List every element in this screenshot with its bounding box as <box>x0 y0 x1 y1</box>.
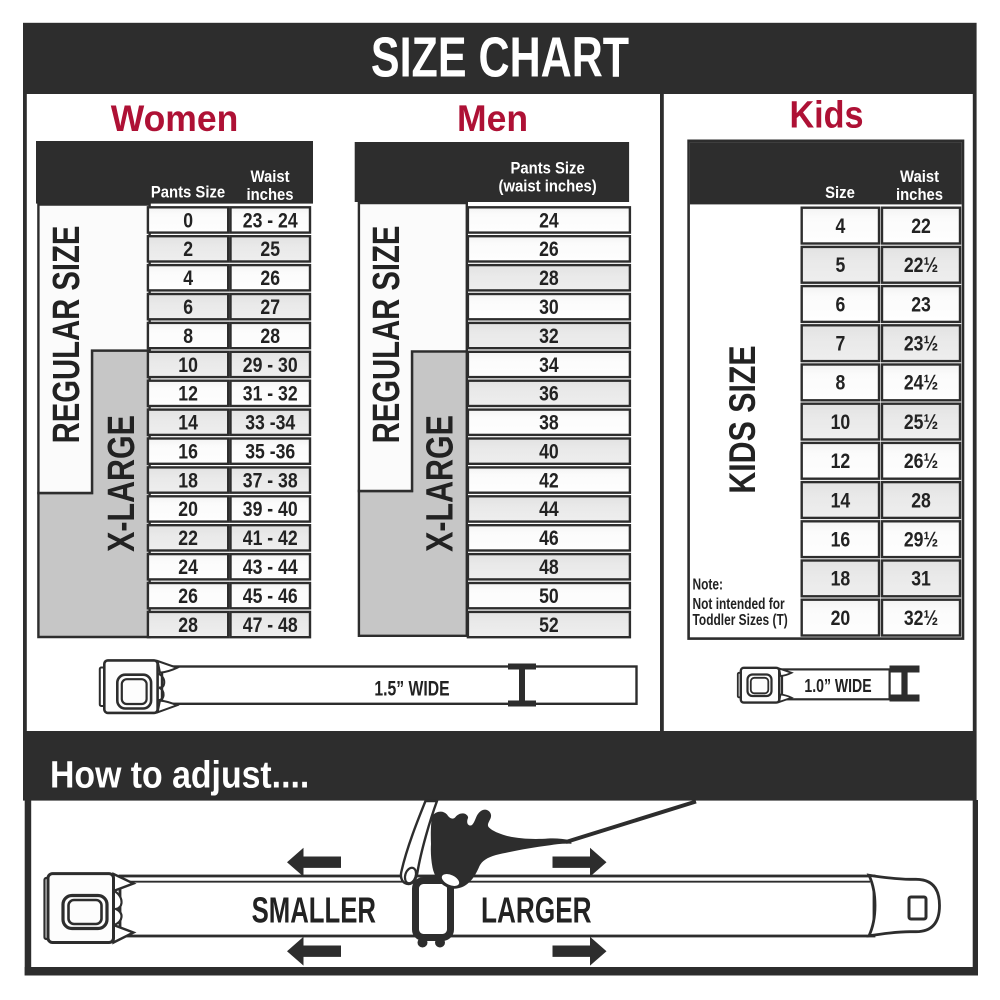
svg-text:30: 30 <box>539 295 559 319</box>
svg-text:26½: 26½ <box>904 450 938 474</box>
svg-text:28: 28 <box>260 324 280 348</box>
svg-text:7: 7 <box>835 332 845 356</box>
svg-text:22½: 22½ <box>904 254 938 278</box>
svg-text:37 - 38: 37 - 38 <box>243 469 298 493</box>
svg-text:16: 16 <box>831 528 851 552</box>
svg-text:31 - 32: 31 - 32 <box>243 382 298 406</box>
svg-text:40: 40 <box>539 440 559 464</box>
svg-text:LARGER: LARGER <box>481 890 592 930</box>
svg-text:10: 10 <box>178 353 198 377</box>
svg-text:14: 14 <box>178 411 198 435</box>
svg-text:X-LARGE: X-LARGE <box>419 415 461 552</box>
svg-text:33 -34: 33 -34 <box>245 411 295 435</box>
svg-text:1.0” WIDE: 1.0” WIDE <box>804 676 871 696</box>
svg-text:KIDS SIZE: KIDS SIZE <box>722 345 764 493</box>
svg-text:18: 18 <box>178 469 198 493</box>
svg-text:5: 5 <box>835 254 845 278</box>
svg-text:32½: 32½ <box>904 606 938 630</box>
svg-text:Men: Men <box>457 97 528 139</box>
svg-text:How to adjust....: How to adjust.... <box>50 753 309 796</box>
svg-text:31: 31 <box>911 567 931 591</box>
svg-text:38: 38 <box>539 411 559 435</box>
svg-text:22: 22 <box>911 214 931 238</box>
svg-text:6: 6 <box>183 295 193 319</box>
svg-text:29½: 29½ <box>904 528 938 552</box>
svg-text:45 - 46: 45 - 46 <box>243 584 298 608</box>
svg-text:29 - 30: 29 - 30 <box>243 353 298 377</box>
svg-text:10: 10 <box>831 410 851 434</box>
svg-text:22: 22 <box>178 527 198 551</box>
svg-text:26: 26 <box>539 238 559 262</box>
svg-text:12: 12 <box>831 450 851 474</box>
svg-text:24: 24 <box>178 556 198 580</box>
svg-text:25½: 25½ <box>904 410 938 434</box>
svg-text:Pants Size: Pants Size <box>510 160 584 178</box>
svg-text:32: 32 <box>539 324 559 348</box>
svg-text:24½: 24½ <box>904 371 938 395</box>
svg-text:inches: inches <box>246 186 293 204</box>
svg-text:inches: inches <box>896 186 943 204</box>
svg-text:Kids: Kids <box>789 93 863 136</box>
svg-text:8: 8 <box>183 324 193 348</box>
svg-text:Note:: Note: <box>693 575 723 593</box>
svg-text:25: 25 <box>260 238 280 262</box>
svg-text:8: 8 <box>835 371 845 395</box>
svg-text:Size: Size <box>825 184 855 202</box>
svg-text:52: 52 <box>539 613 559 637</box>
svg-text:14: 14 <box>831 489 851 513</box>
svg-text:39 - 40: 39 - 40 <box>243 498 298 522</box>
svg-text:46: 46 <box>539 527 559 551</box>
svg-text:SIZE CHART: SIZE CHART <box>371 25 629 89</box>
svg-text:28: 28 <box>911 489 931 513</box>
svg-text:Pants Size: Pants Size <box>151 184 225 202</box>
svg-text:28: 28 <box>178 613 198 637</box>
svg-text:24: 24 <box>539 209 559 233</box>
svg-text:SMALLER: SMALLER <box>252 890 376 930</box>
svg-text:Women: Women <box>111 97 239 139</box>
svg-text:26: 26 <box>178 584 198 608</box>
svg-text:28: 28 <box>539 267 559 291</box>
svg-text:23½: 23½ <box>904 332 938 356</box>
svg-text:23: 23 <box>911 293 931 317</box>
svg-text:43 - 44: 43 - 44 <box>243 556 298 580</box>
svg-text:Waist: Waist <box>250 168 290 186</box>
svg-text:16: 16 <box>178 440 198 464</box>
svg-text:4: 4 <box>835 214 845 238</box>
svg-text:Waist: Waist <box>900 168 940 186</box>
svg-text:REGULAR SIZE: REGULAR SIZE <box>365 226 408 444</box>
svg-text:X-LARGE: X-LARGE <box>101 415 143 552</box>
svg-text:35 -36: 35 -36 <box>245 440 295 464</box>
svg-text:48: 48 <box>539 556 559 580</box>
svg-text:42: 42 <box>539 469 559 493</box>
svg-text:1.5” WIDE: 1.5” WIDE <box>374 676 449 700</box>
svg-text:(waist inches): (waist inches) <box>499 178 597 196</box>
svg-text:18: 18 <box>831 567 851 591</box>
svg-text:26: 26 <box>260 267 280 291</box>
svg-text:20: 20 <box>178 498 198 522</box>
svg-text:6: 6 <box>835 293 845 317</box>
svg-text:27: 27 <box>260 295 280 319</box>
svg-text:50: 50 <box>539 584 559 608</box>
svg-text:REGULAR SIZE: REGULAR SIZE <box>45 226 88 444</box>
svg-text:20: 20 <box>831 606 851 630</box>
svg-text:41 - 42: 41 - 42 <box>243 527 298 551</box>
svg-text:12: 12 <box>178 382 198 406</box>
svg-text:23 - 24: 23 - 24 <box>243 209 298 233</box>
svg-text:36: 36 <box>539 382 559 406</box>
svg-text:34: 34 <box>539 353 559 377</box>
svg-text:4: 4 <box>183 267 193 291</box>
svg-text:2: 2 <box>183 238 193 262</box>
svg-text:47 - 48: 47 - 48 <box>243 613 298 637</box>
svg-text:0: 0 <box>183 209 193 233</box>
svg-text:44: 44 <box>539 498 559 522</box>
svg-text:Toddler Sizes (T): Toddler Sizes (T) <box>693 611 788 629</box>
svg-text:Not intended for: Not intended for <box>693 594 786 612</box>
